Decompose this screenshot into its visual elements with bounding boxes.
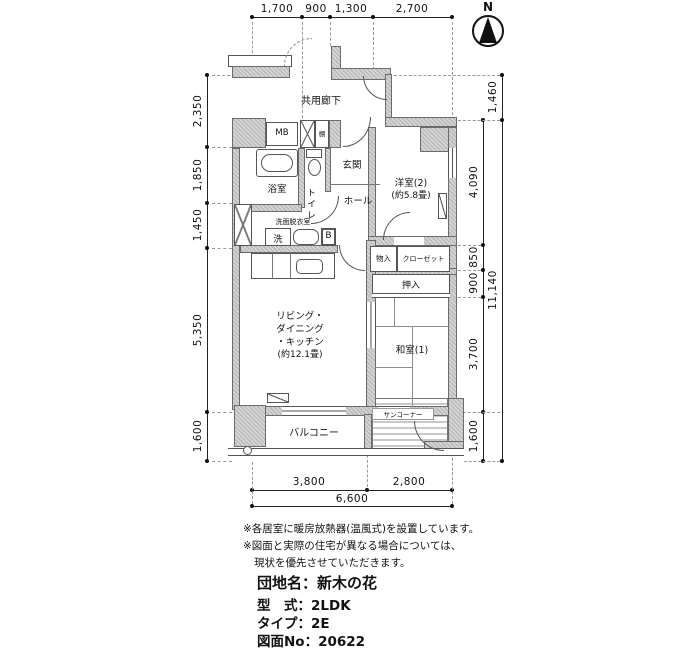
note-1: ※各居室に暖房放熱器(温風式)を設置しています。 (243, 521, 479, 536)
entrance-door-arc (343, 117, 371, 147)
info-estate-name: 団地名：新木の花 (257, 572, 377, 593)
extension-line (458, 297, 481, 298)
room-label-ldk: リビング・ ダイニング ・キッチン (約12.1畳) (260, 310, 340, 362)
dim-right-4090: 4,090 (468, 166, 480, 199)
wall (232, 66, 290, 78)
dim-tick (481, 295, 485, 299)
dim-tick (205, 145, 209, 149)
room-label-entrance: 玄関 (334, 157, 370, 171)
room-label-corridor: 共用廊下 (281, 92, 361, 107)
dim-bottom-2: 2,800 (393, 476, 426, 488)
dim-left-3: 1,450 (192, 209, 204, 242)
dim-tick (481, 243, 485, 247)
room-label-hall: ホール (334, 193, 382, 207)
extension-line (212, 75, 230, 76)
room-label-sun-corner: サンコーナー (372, 408, 434, 420)
extension-line (464, 461, 500, 462)
kitchen-sink (296, 259, 323, 274)
western2-door-arc (383, 212, 410, 240)
floor-plan-sheet: N 1,700 900 1,300 2,700 2,350 1,850 1,45… (0, 0, 700, 650)
dim-tick (365, 488, 369, 492)
bathtub-inner (261, 154, 293, 172)
dim-top-1: 1,700 (261, 3, 294, 15)
toilet-bowl (308, 159, 321, 176)
room-label-closet: クローゼット (397, 254, 450, 264)
dim-top-3: 1,300 (335, 3, 368, 15)
ldk-line3: ・キッチン (276, 336, 324, 349)
dim-tick (450, 504, 454, 508)
counter-divider (272, 253, 273, 279)
ldk-line1: リビング・ (276, 310, 324, 323)
dim-right-850: 850 (468, 246, 480, 268)
dim-right-900: 900 (468, 272, 480, 294)
dim-tick (500, 459, 504, 463)
washroom-sink (293, 229, 319, 245)
ldk-washitsu-sliding-door (366, 302, 376, 348)
extension-line (394, 75, 500, 76)
shelf-label: 棚 (315, 128, 329, 138)
dim-right-1460: 1,460 (487, 81, 499, 114)
dim-tick (300, 15, 304, 19)
room-label-western2: 洋室(2) (387, 175, 435, 189)
dim-left-5: 1,600 (192, 420, 204, 453)
pipe-space-top (300, 120, 315, 148)
dim-tick (250, 504, 254, 508)
tatami-line (412, 326, 413, 406)
dim-left-4: 5,350 (192, 314, 204, 347)
dim-tick (205, 246, 209, 250)
north-label: N (480, 0, 496, 14)
dim-right-1600: 1,600 (468, 420, 480, 453)
extension-line (458, 412, 500, 413)
dim-tick (205, 201, 209, 205)
toilet-tank (306, 149, 322, 158)
extension-line (252, 462, 253, 504)
dim-tick (500, 118, 504, 122)
wall (325, 148, 331, 192)
room-label-oshiire: 押入 (372, 278, 450, 291)
info-drawing-no: 図面No：20622 (257, 630, 365, 650)
balcony-railing (228, 448, 464, 456)
balcony-drain (243, 446, 252, 455)
dim-top-4: 2,700 (396, 3, 429, 15)
room-label-western2-size: (約5.8畳) (381, 188, 441, 201)
counter-divider (290, 253, 291, 279)
room-label-bath: 浴室 (258, 181, 296, 195)
dim-left-2: 1,850 (192, 159, 204, 192)
room-label-balcony: バルコニー (282, 424, 346, 439)
room-label-japanese1: 和室(1) (388, 342, 436, 356)
dim-tick (328, 15, 332, 19)
dim-line-bottom-total (252, 506, 452, 507)
dim-line-top (252, 17, 452, 18)
dim-tick (450, 15, 454, 19)
dim-line-left (207, 75, 208, 461)
dim-top-2: 900 (305, 3, 327, 15)
wall (329, 120, 341, 148)
extension-line (212, 412, 232, 413)
wall-balcony-divider (364, 414, 372, 450)
dim-right-11140: 11,140 (487, 270, 499, 310)
extension-line (212, 248, 232, 249)
extension-line (452, 22, 453, 115)
dim-right-3700: 3,700 (468, 338, 480, 371)
balcony-pillar (234, 405, 266, 447)
meter-box-label: MB (266, 128, 298, 138)
extension-line (458, 245, 481, 246)
wall (385, 117, 457, 127)
ldk-line2: ダイニング (276, 323, 324, 336)
dim-tick (205, 459, 209, 463)
extension-line (212, 203, 232, 204)
extension-line (458, 120, 500, 121)
extension-line (458, 270, 481, 271)
extension-line (330, 22, 331, 46)
boiler-label: B (321, 231, 336, 241)
hall-ldk-door-arc (339, 245, 365, 271)
dim-bottom-total: 6,600 (336, 493, 369, 505)
room-label-storage: 物入 (370, 253, 397, 264)
entrance-step-line (330, 184, 380, 185)
dim-tick (250, 15, 254, 19)
room-label-washroom: 洗面脱衣室 (268, 217, 318, 227)
wall-left-outer (232, 148, 240, 410)
washing-machine-label: 洗 (265, 232, 291, 245)
dim-tick (205, 410, 209, 414)
ldk-window (282, 406, 346, 416)
extension-line (212, 461, 232, 462)
extension-line (252, 22, 253, 53)
dim-tick (371, 15, 375, 19)
dim-tick (500, 73, 504, 77)
extension-line (452, 458, 453, 504)
tatami-line (394, 298, 395, 326)
dim-left-1: 2,350 (192, 95, 204, 128)
extension-line (367, 455, 368, 487)
dim-tick (481, 268, 485, 272)
extension-line (373, 22, 374, 70)
wall (240, 245, 338, 253)
radiator-ldk (267, 393, 289, 403)
note-3: 現状を優先させていただきます。 (254, 555, 410, 570)
wall (232, 118, 266, 148)
corridor-door-arc (284, 38, 312, 66)
dim-line-bottom (252, 490, 452, 491)
compass-needle-icon (479, 17, 497, 43)
info-type: タイプ：2E (257, 612, 330, 632)
note-2: ※図面と実際の住宅が異なる場合については、 (243, 538, 461, 553)
pipe-space-left (234, 204, 252, 246)
western2-window (448, 148, 457, 178)
oshiire-sliding-door (372, 293, 450, 298)
dim-line-right-outer (502, 75, 503, 461)
tatami-line (376, 367, 412, 368)
dim-bottom-1: 3,800 (293, 476, 326, 488)
front-door-arc (363, 76, 387, 100)
ldk-size: (約12.1畳) (277, 349, 322, 362)
extension-line (212, 147, 232, 148)
info-layout: 型 式：2LDK (257, 594, 351, 614)
dim-tick (205, 73, 209, 77)
